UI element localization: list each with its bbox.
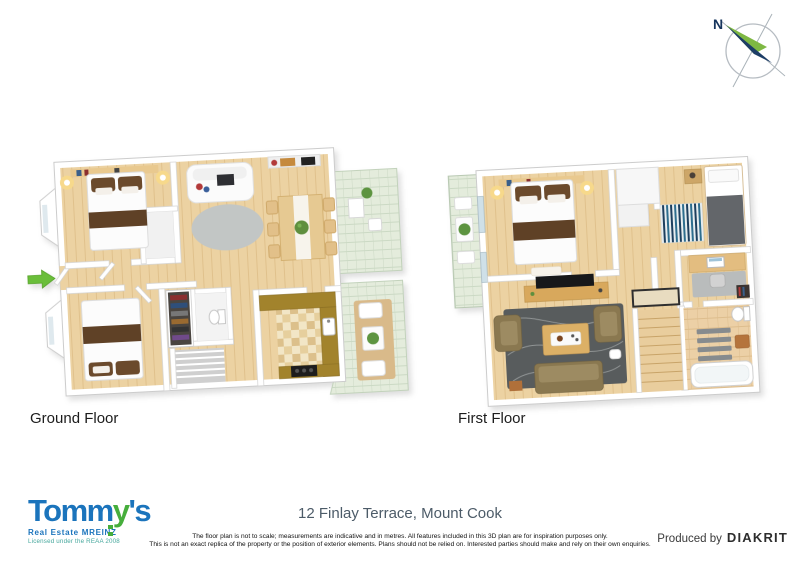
bay-window-bottom (45, 300, 64, 359)
property-address: 12 Finlay Terrace, Mount Cook (0, 505, 800, 522)
produced-by: Produced by DIAKRIT (657, 530, 788, 545)
entrance-arrow-icon (28, 269, 56, 288)
bathroom (683, 305, 753, 390)
first-floor-label: First Floor (458, 410, 526, 427)
key-notch-icon (108, 525, 113, 529)
study-nook (689, 253, 750, 301)
wc (191, 287, 234, 346)
stairs (631, 288, 688, 393)
bedroom-2 (81, 298, 143, 381)
floor-plan-page: N (0, 0, 800, 566)
wardrobe (166, 289, 194, 347)
producer-logo: DIAKRIT (727, 530, 788, 545)
ground-floor-plan (24, 142, 408, 408)
bay-window-top (39, 188, 58, 247)
produced-by-label: Produced by (657, 533, 722, 545)
compass-north-label: N (713, 16, 723, 32)
staircase (170, 346, 226, 389)
compass-icon: N (708, 8, 794, 94)
terrace (335, 168, 402, 273)
ground-floor-label: Ground Floor (30, 410, 118, 427)
first-floor-plan (446, 154, 768, 412)
